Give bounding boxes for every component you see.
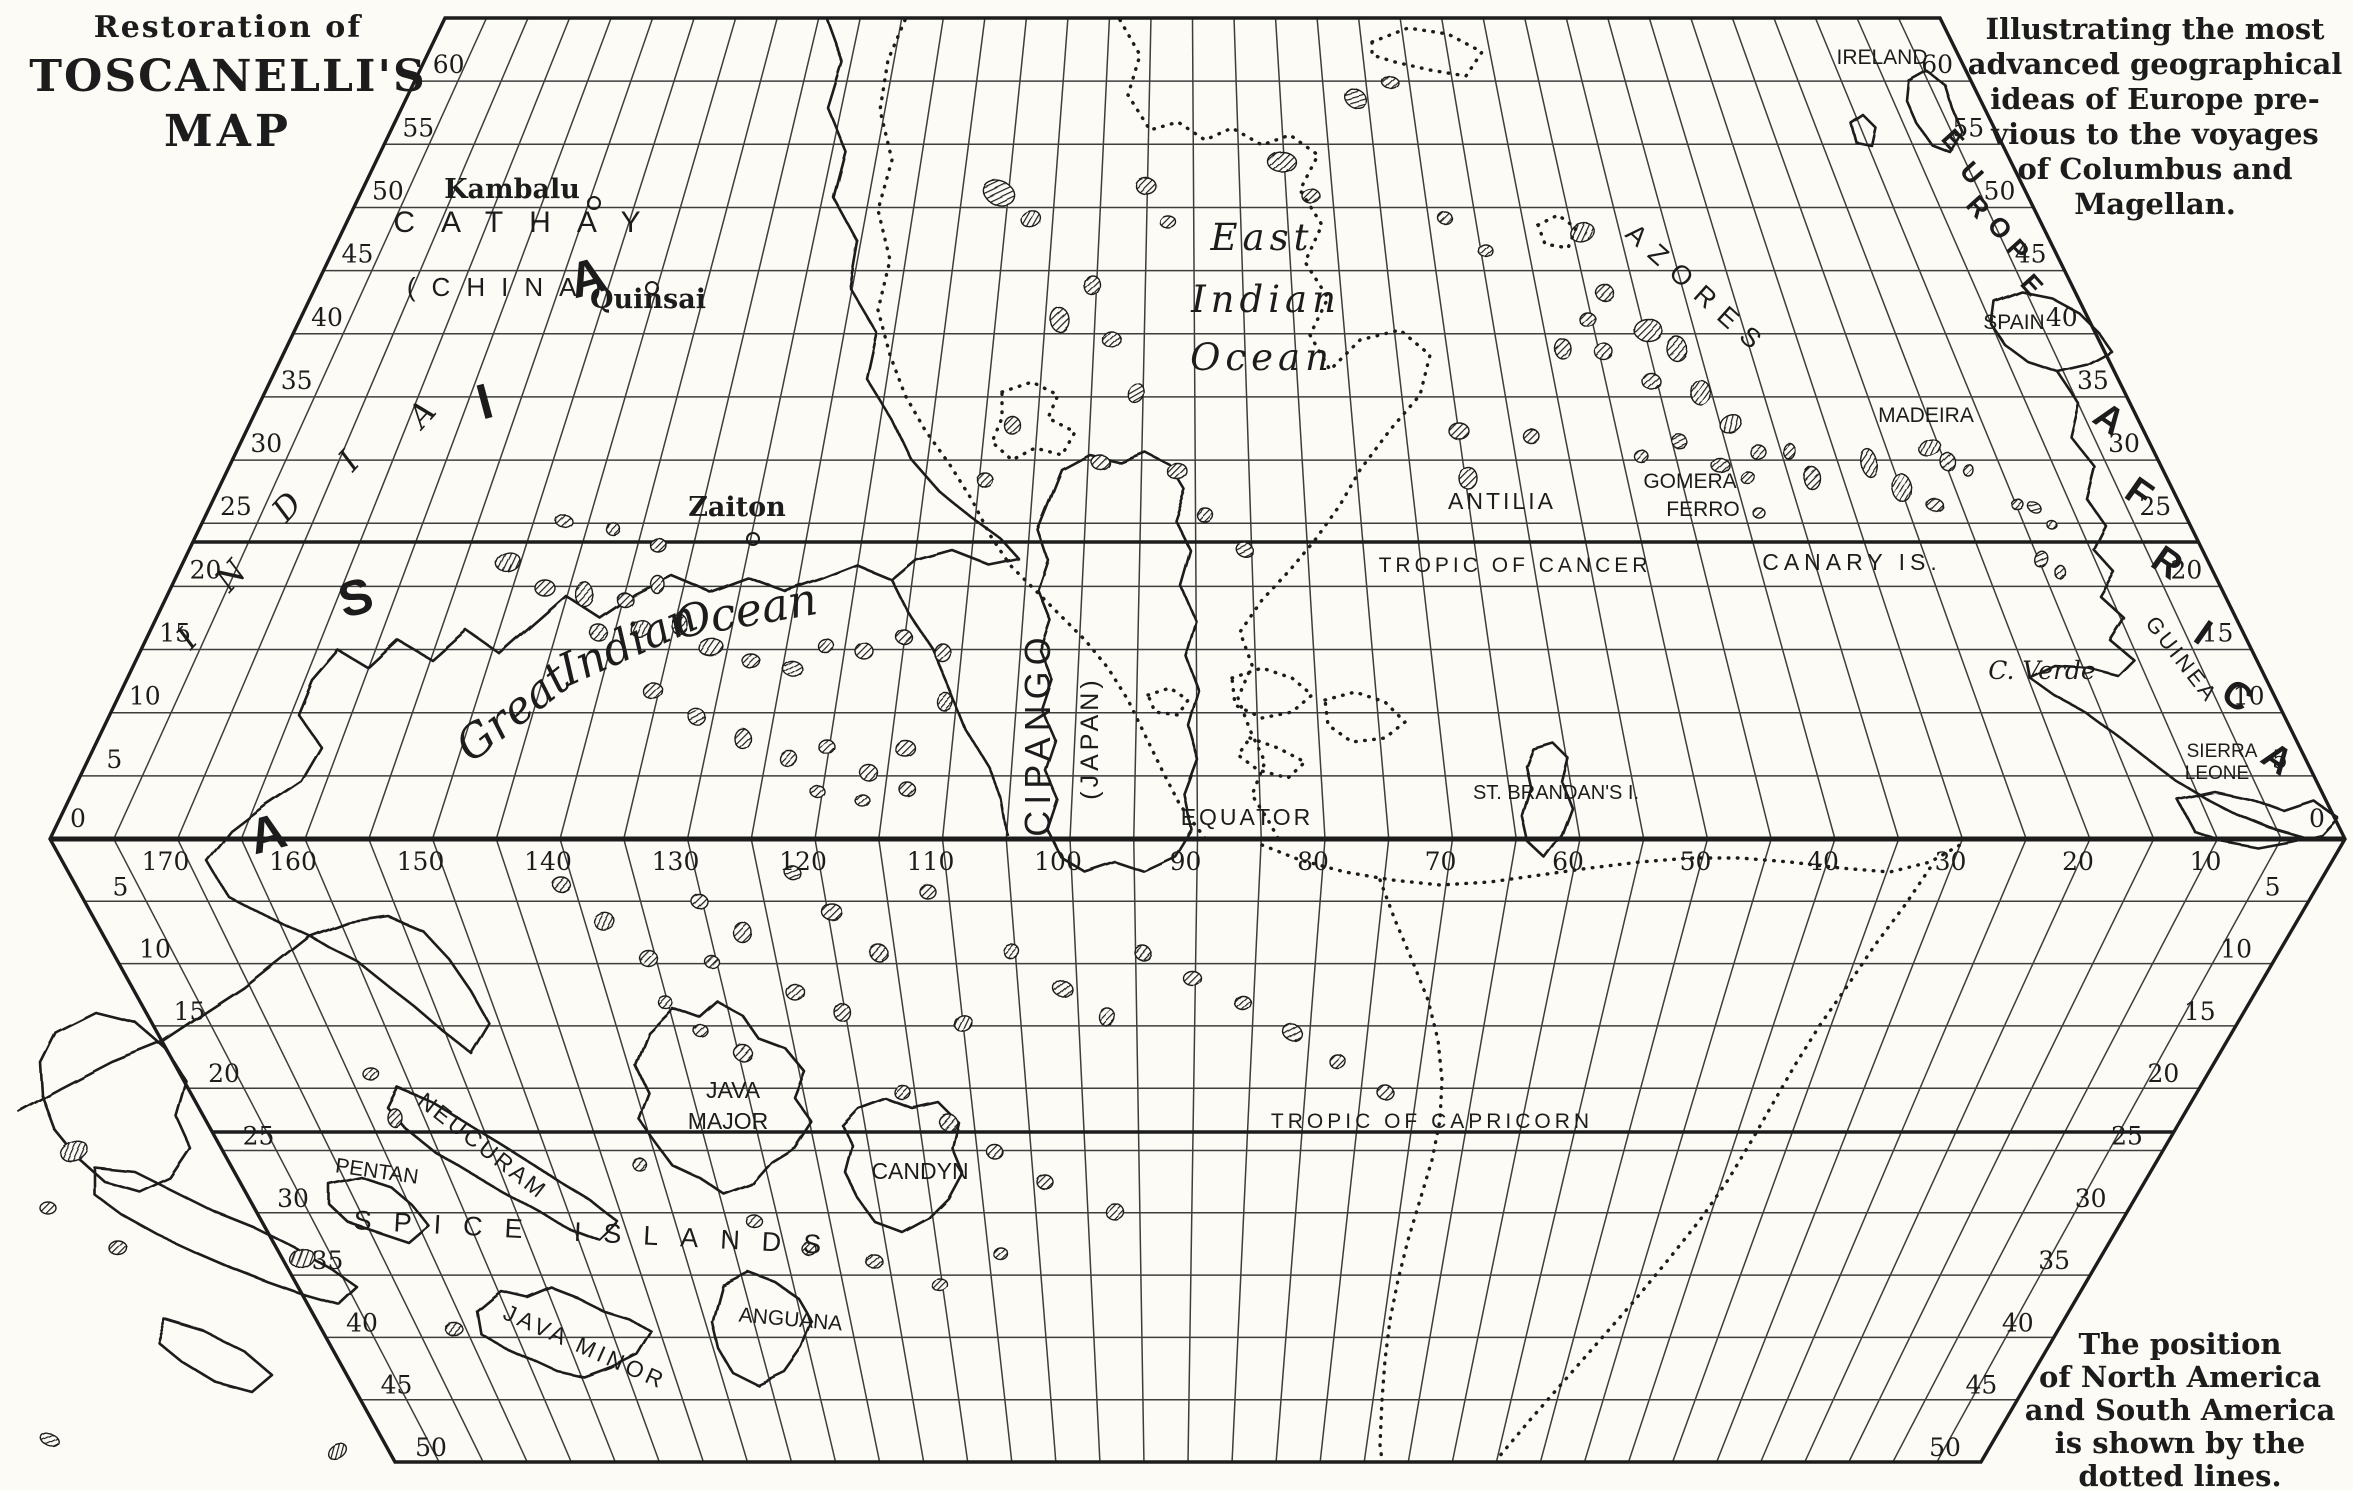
label-cipango: CIPANGO xyxy=(1017,631,1058,836)
island xyxy=(642,682,662,698)
lat-label-left: 35 xyxy=(281,366,313,395)
island xyxy=(1752,507,1764,517)
lat-label-left: 10 xyxy=(129,682,161,711)
island xyxy=(995,1249,1009,1261)
island xyxy=(705,956,719,968)
island xyxy=(1106,1204,1124,1220)
island xyxy=(900,783,916,797)
island xyxy=(553,878,571,892)
island xyxy=(695,1026,709,1038)
island xyxy=(576,583,594,607)
top-right-note: Illustrating the most advanced geographi… xyxy=(1959,12,2351,222)
island xyxy=(1053,980,1071,996)
island xyxy=(2012,500,2024,510)
island xyxy=(1377,1085,1393,1099)
lon-label: 40 xyxy=(1807,847,1839,876)
label-spain: SPAIN xyxy=(1983,311,2044,334)
lat-label-left: 25 xyxy=(243,1122,275,1151)
lat-label-right: 5 xyxy=(2265,872,2281,901)
island xyxy=(822,904,842,920)
equator-zero-right: 0 xyxy=(2309,804,2325,833)
island xyxy=(1438,212,1452,224)
map-title-line1: Restoration of xyxy=(18,10,438,45)
island xyxy=(658,996,672,1008)
label-st-brandans-i: ST. BRANDAN'S I. xyxy=(1473,782,1639,804)
sw-land-3 xyxy=(158,1320,272,1392)
label-tropic-of-capricorn: TROPIC OF CAPRICORN xyxy=(1271,1110,1593,1133)
label-canary-is: CANARY IS. xyxy=(1762,549,1942,575)
label-leone: LEONE xyxy=(2185,763,2249,784)
lat-label-right: 40 xyxy=(2046,303,2078,332)
lat-label-right: 15 xyxy=(2184,997,2216,1026)
island xyxy=(734,728,750,748)
label-cathay: CATHAY xyxy=(393,206,666,239)
lon-label: 170 xyxy=(142,847,190,876)
island xyxy=(1478,244,1492,256)
island xyxy=(1595,284,1613,300)
lat-label-right: 10 xyxy=(2220,935,2252,964)
island xyxy=(895,740,915,756)
label-gomera: GOMERA xyxy=(1643,470,1736,493)
island xyxy=(1268,152,1296,172)
island xyxy=(1750,445,1766,459)
label-antilia: ANTILIA xyxy=(1448,488,1556,514)
island xyxy=(326,1441,350,1463)
lon-label: 150 xyxy=(397,847,445,876)
island xyxy=(779,750,797,766)
lat-label-left: 40 xyxy=(311,303,343,332)
island xyxy=(1100,1009,1116,1027)
island xyxy=(1927,499,1943,511)
top-note-line: ideas of Europe pre- xyxy=(1959,82,2351,117)
island xyxy=(39,1431,60,1448)
island xyxy=(1666,336,1686,360)
label-tropic-of-cancer: TROPIC OF CANCER xyxy=(1379,554,1652,577)
island xyxy=(605,522,619,534)
island xyxy=(633,1159,647,1171)
map-title: Restoration of TOSCANELLI'S MAP xyxy=(18,10,438,157)
lon-label: 120 xyxy=(779,847,827,876)
island xyxy=(937,693,953,711)
island xyxy=(859,764,877,780)
lat-label-left: 35 xyxy=(312,1246,344,1275)
island xyxy=(867,1255,883,1269)
lon-label: 130 xyxy=(652,847,700,876)
lat-label-left: 30 xyxy=(250,429,282,458)
island xyxy=(834,1003,850,1021)
island xyxy=(1103,332,1121,348)
island xyxy=(1037,1175,1053,1189)
island xyxy=(977,473,993,487)
bottom-note-line: is shown by the xyxy=(2015,1427,2345,1460)
island xyxy=(1084,275,1100,295)
toscanelli-map-canvas: 6060555550504545404035353030252520201515… xyxy=(0,0,2353,1491)
map-title-line3: MAP xyxy=(18,106,438,157)
island xyxy=(856,644,874,660)
island xyxy=(1804,467,1820,489)
island xyxy=(651,576,665,594)
lat-label-left: 5 xyxy=(106,745,122,774)
island xyxy=(1450,424,1470,440)
lon-label: 110 xyxy=(907,847,955,876)
island xyxy=(1633,449,1647,461)
island xyxy=(897,631,913,645)
lat-label-right: 35 xyxy=(2038,1246,2070,1275)
island xyxy=(617,593,633,607)
lat-label-left: 45 xyxy=(342,240,374,269)
lon-label: 30 xyxy=(1935,847,1967,876)
lon-label: 20 xyxy=(2062,847,2094,876)
island xyxy=(1741,472,1755,484)
label-java-major-2: MAJOR xyxy=(688,1108,769,1134)
label-kambalu: Kambalu xyxy=(444,174,580,205)
island xyxy=(743,655,761,669)
lat-label-right: 35 xyxy=(2077,366,2109,395)
island xyxy=(1595,344,1613,360)
island xyxy=(855,794,869,806)
island xyxy=(650,538,666,552)
island xyxy=(1160,216,1176,228)
lat-label-left: 5 xyxy=(113,872,129,901)
island xyxy=(811,786,825,798)
island xyxy=(1051,308,1069,332)
lon-label: 60 xyxy=(1552,847,1584,876)
bottom-note-line: The position xyxy=(2015,1328,2345,1361)
toscanelli-map-page: 6060555550504545404035353030252520201515… xyxy=(0,0,2353,1491)
map-title-line2: TOSCANELLI'S xyxy=(18,51,438,102)
island xyxy=(364,1069,380,1081)
lon-label: 140 xyxy=(524,847,572,876)
lon-label: 90 xyxy=(1170,847,1202,876)
island xyxy=(894,1085,910,1099)
island xyxy=(59,1139,91,1165)
island xyxy=(1382,76,1398,88)
island xyxy=(1004,945,1020,959)
top-note-line: vious to the voyages xyxy=(1959,117,2351,152)
island xyxy=(1004,416,1020,434)
island xyxy=(932,1279,948,1291)
label-candyn: CANDYN xyxy=(871,1158,968,1184)
island xyxy=(1554,338,1570,358)
label-east-indian-ocean-2: Indian xyxy=(1190,278,1341,321)
island xyxy=(1634,319,1662,341)
island xyxy=(939,1114,957,1130)
top-note-line: Magellan. xyxy=(1959,187,2351,222)
island xyxy=(1330,1055,1346,1069)
lat-label-left: 30 xyxy=(277,1184,309,1213)
label-zaiton: Zaiton xyxy=(688,492,786,523)
label-ireland: IRELAND xyxy=(1836,46,1927,69)
label-madeira: MADEIRA xyxy=(1878,404,1974,427)
island xyxy=(692,895,708,909)
lat-label-left: 20 xyxy=(208,1059,240,1088)
island xyxy=(1197,508,1213,522)
island xyxy=(1301,188,1319,202)
island xyxy=(388,1109,402,1127)
island xyxy=(1459,467,1477,489)
island xyxy=(2055,565,2065,579)
island xyxy=(786,984,804,1000)
island xyxy=(557,516,573,528)
label-east-indian-ocean-3: Ocean xyxy=(1190,336,1334,379)
island xyxy=(1522,428,1538,442)
top-note-line: advanced geographical xyxy=(1959,47,2351,82)
bottom-note-line: and South America xyxy=(2015,1394,2345,1427)
island xyxy=(446,1324,464,1336)
label-east-indian-ocean-1: East xyxy=(1210,216,1314,259)
island xyxy=(1168,464,1188,480)
lon-label: 10 xyxy=(2190,847,2222,876)
island xyxy=(817,638,833,652)
lat-label-right: 45 xyxy=(1965,1371,1997,1400)
label-java-major-1: JAVA xyxy=(706,1077,761,1103)
island xyxy=(1963,464,1973,476)
island xyxy=(1784,444,1796,460)
island xyxy=(40,1202,56,1214)
lon-label: 100 xyxy=(1034,847,1082,876)
island xyxy=(2047,521,2057,529)
island xyxy=(869,944,887,960)
island xyxy=(1234,995,1250,1009)
island xyxy=(109,1241,127,1255)
lat-label-left: 50 xyxy=(372,176,404,205)
lat-label-left: 45 xyxy=(381,1371,413,1400)
label-japan: (JAPAN) xyxy=(1076,676,1104,799)
island xyxy=(1643,374,1661,390)
lat-label-left: 25 xyxy=(220,492,252,521)
island xyxy=(1091,455,1109,469)
lat-label-right: 30 xyxy=(2075,1184,2107,1213)
lon-label: 50 xyxy=(1680,847,1712,876)
lon-label: 80 xyxy=(1297,847,1329,876)
lat-label-left: 15 xyxy=(174,997,206,1026)
lat-label-left: 50 xyxy=(415,1433,447,1462)
island xyxy=(1134,945,1150,959)
island xyxy=(820,741,836,755)
bottom-note-line: dotted lines. xyxy=(2015,1460,2345,1491)
island xyxy=(934,643,950,661)
island xyxy=(1941,453,1955,471)
label-ferro: FERRO xyxy=(1666,498,1740,521)
island xyxy=(987,1145,1003,1159)
lat-label-right: 50 xyxy=(1929,1433,1961,1462)
lat-label-left: 40 xyxy=(346,1308,378,1337)
label-equator: EQUATOR xyxy=(1181,804,1314,830)
island xyxy=(535,580,555,596)
top-note-line: Illustrating the most xyxy=(1959,12,2351,47)
lat-label-left: 10 xyxy=(139,935,171,964)
island xyxy=(1183,971,1201,985)
island xyxy=(733,1044,751,1060)
label-c-verde: C. Verde xyxy=(1988,656,2095,685)
equator-zero-left: 0 xyxy=(70,804,86,833)
island xyxy=(1135,177,1155,193)
lat-label-right: 25 xyxy=(2111,1122,2143,1151)
label-sierra: SIERRA xyxy=(2187,741,2258,762)
island xyxy=(639,950,657,966)
lat-label-right: 20 xyxy=(2147,1059,2179,1088)
island xyxy=(733,922,751,942)
island xyxy=(1578,311,1594,325)
lon-label: 70 xyxy=(1425,847,1457,876)
island xyxy=(920,885,936,899)
bottom-note-line: of North America xyxy=(2015,1361,2345,1394)
bottom-right-note: The position of North America and South … xyxy=(2015,1328,2345,1491)
top-note-line: of Columbus and xyxy=(1959,152,2351,187)
